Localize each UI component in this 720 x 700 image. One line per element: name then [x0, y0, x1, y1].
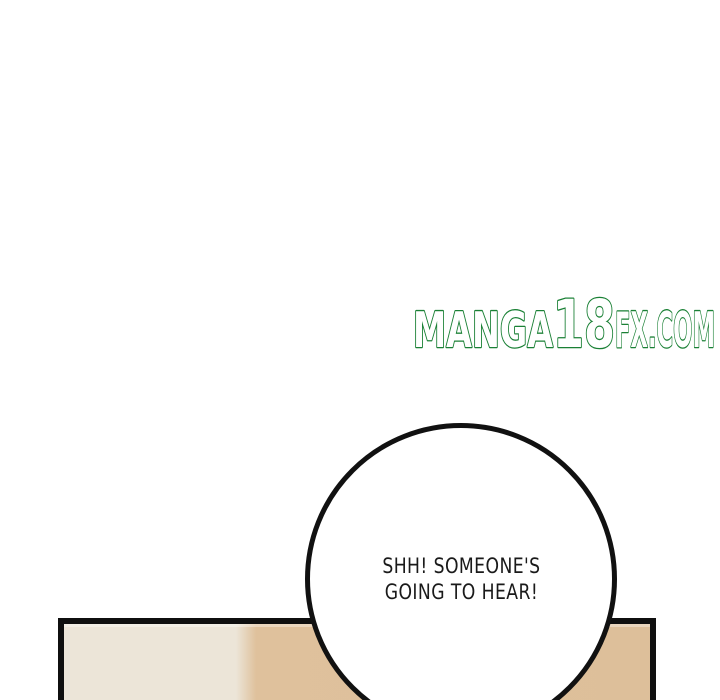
- speech-line-1: SHH! SOMEONE'S: [382, 553, 540, 579]
- speech-bubble-text: SHH! SOMEONE'S GOING TO HEAR!: [365, 553, 558, 605]
- speech-line-2: GOING TO HEAR!: [382, 579, 540, 605]
- watermark-text-fxcom: FX.COM: [615, 302, 715, 356]
- watermark-text-manga: MANGA: [413, 302, 553, 356]
- speech-bubble: SHH! SOMEONE'S GOING TO HEAR!: [305, 423, 617, 700]
- site-watermark: MANGA 18 FX.COM: [405, 294, 720, 356]
- watermark-text-18: 18: [553, 294, 615, 356]
- manga-page: MANGA 18 FX.COM SHH! SOMEONE'S GOING TO …: [0, 0, 720, 700]
